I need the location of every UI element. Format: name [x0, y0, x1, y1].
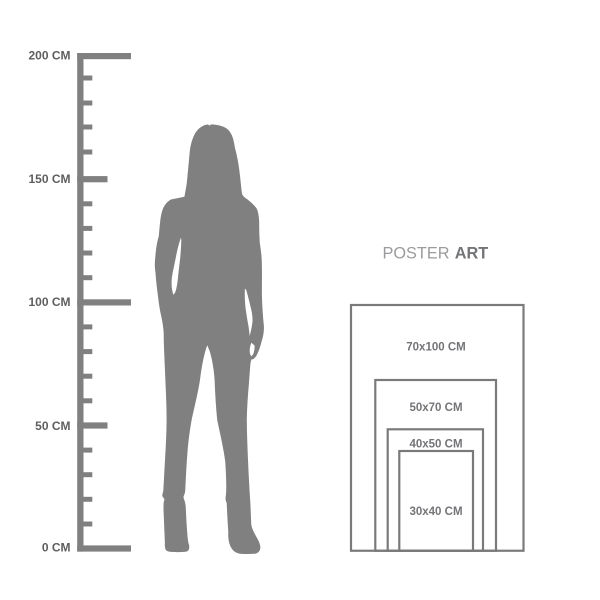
svg-text:70x100 CM: 70x100 CM — [406, 342, 465, 354]
svg-text:50 CM: 50 CM — [35, 419, 70, 433]
svg-text:40x50 CM: 40x50 CM — [409, 439, 462, 451]
svg-text:200 CM: 200 CM — [28, 49, 70, 63]
svg-text:100 CM: 100 CM — [28, 295, 70, 309]
svg-text:150 CM: 150 CM — [28, 172, 70, 186]
svg-text:ART: ART — [455, 245, 489, 263]
svg-text:POSTER: POSTER — [383, 245, 450, 263]
svg-text:50x70 CM: 50x70 CM — [409, 402, 462, 414]
svg-text:30x40 CM: 30x40 CM — [409, 506, 462, 518]
svg-text:0 CM: 0 CM — [42, 540, 71, 554]
